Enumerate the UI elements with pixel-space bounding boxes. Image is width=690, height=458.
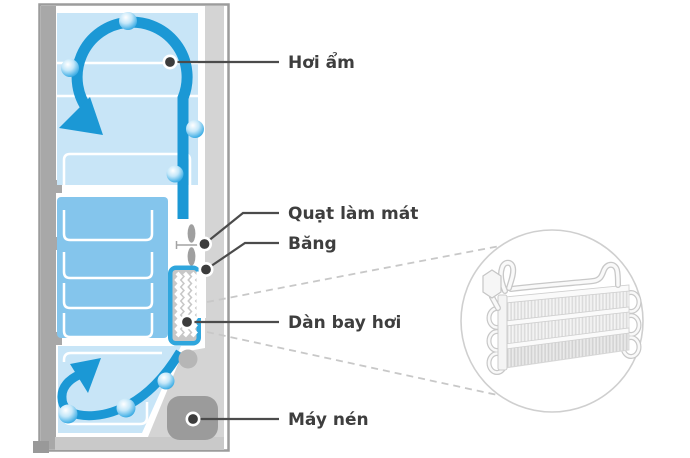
water-droplet-icon — [59, 405, 78, 424]
ice-layer — [197, 272, 207, 319]
label-cooling-fan: Quạt làm mát — [288, 204, 418, 224]
callout-dot-compressor — [187, 413, 199, 425]
water-droplet-icon — [117, 399, 136, 418]
water-droplet-icon — [158, 373, 175, 390]
diagram-canvas: Hơi ẩm Quạt làm mát Băng Dàn bay hơi Máy… — [0, 0, 690, 458]
label-evaporator: Dàn bay hơi — [288, 313, 401, 333]
water-droplet-icon — [119, 12, 137, 30]
refrigerator-diagram: Hơi ẩm Quạt làm mát Băng Dàn bay hơi Máy… — [0, 0, 690, 458]
cabinet-foot — [33, 441, 49, 453]
water-droplet-icon — [167, 166, 184, 183]
label-ice: Băng — [288, 234, 337, 254]
callout-dot-evaporator — [181, 316, 193, 328]
water-droplet-icon — [186, 120, 204, 138]
magnifier-dashed-line — [207, 245, 505, 302]
callout-dot-ice — [200, 263, 212, 275]
magnifier-dashed-line — [207, 332, 502, 396]
label-moisture: Hơi ẩm — [288, 51, 355, 73]
cabinet-back-wall — [205, 6, 224, 449]
cabinet-left-wall — [41, 6, 56, 449]
label-compressor: Máy nén — [288, 410, 369, 430]
evaporator-coil — [168, 266, 201, 346]
pipe-circle — [179, 350, 198, 369]
water-droplet-icon — [61, 59, 79, 77]
drier-fitting — [483, 270, 501, 298]
freezer-compartment — [57, 197, 168, 338]
callout-dot-cooling-fan — [198, 238, 210, 250]
callout-dot-moisture — [164, 56, 176, 68]
